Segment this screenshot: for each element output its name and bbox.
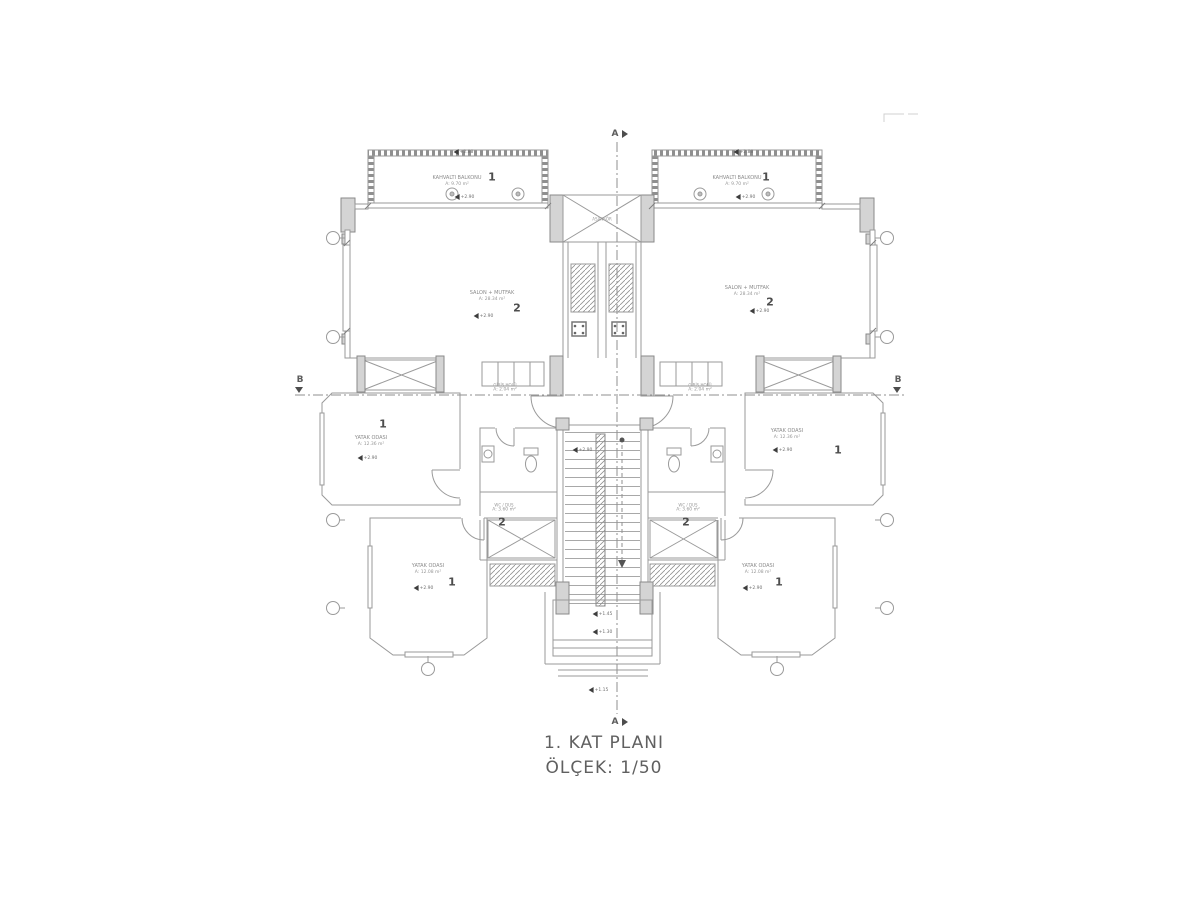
room-area: A: 3.60 m² xyxy=(676,508,700,514)
room-label-wc-right: WC / DUŞ A: 3.60 m² xyxy=(676,502,700,513)
room-name: YATAK ODASI xyxy=(412,563,444,570)
level-marker: +2.90 xyxy=(570,447,593,453)
room-tag-balcony-right: 1 xyxy=(762,171,770,184)
room-area: A: 12.36 m² xyxy=(771,434,803,440)
bedroom-mid-right-outline xyxy=(743,393,885,505)
level-marker: +2.90 xyxy=(411,585,434,591)
level-flag-icon xyxy=(570,447,578,453)
level-value: +1.30 xyxy=(599,630,613,635)
level-flag-icon xyxy=(411,585,419,591)
level-flag-icon xyxy=(590,629,598,635)
room-label-bedroom-mid-right: YATAK ODASI A: 12.36 m² xyxy=(771,428,803,440)
room-label-hall-left: GİRİŞ HOLÜ A: 2.04 m² xyxy=(493,382,517,393)
section-marker-b-left: B xyxy=(297,375,304,385)
level-marker: +1.15 xyxy=(586,687,609,693)
level-flag-icon xyxy=(740,585,748,591)
level-value: +1.15 xyxy=(595,688,609,693)
corner-mark xyxy=(884,114,918,122)
level-marker: +2.90 xyxy=(355,455,378,461)
section-marker-b-right: B xyxy=(895,375,902,385)
level-value: +2.90 xyxy=(756,309,770,314)
level-flag-icon xyxy=(471,313,479,319)
section-marker-a-bottom: A xyxy=(612,717,619,727)
middle-band xyxy=(345,356,875,396)
room-name: SALON + MUTFAK xyxy=(725,285,769,292)
room-area: A: 28.34 m² xyxy=(725,291,769,297)
room-area: A: 12.36 m² xyxy=(355,441,387,447)
section-marker-a-top: A xyxy=(612,129,619,139)
level-flag-icon xyxy=(770,447,778,453)
room-tag-bedroom-mid-right: 1 xyxy=(834,444,842,457)
plan-scale: ÖLÇEK: 1/50 xyxy=(546,758,663,778)
level-marker: +2.90 xyxy=(770,447,793,453)
floor-plan-sheet: A A B B KAHVALTI BALKONU A: 9.70 m² 1 +2… xyxy=(0,0,1200,900)
room-label-balcony-right: KAHVALTI BALKONU A: 9.70 m² xyxy=(712,175,761,187)
elevator-label: ASANSÖR xyxy=(592,216,612,221)
room-area: A: 12.08 m² xyxy=(412,569,444,575)
room-name: KAHVALTI BALKONU xyxy=(432,175,481,182)
level-marker: +2.90 xyxy=(733,194,756,200)
room-tag-wc-left: 2 xyxy=(498,516,506,529)
level-value: +2.90 xyxy=(742,195,756,200)
level-value: +2.90 xyxy=(779,448,793,453)
room-tag-salon-right: 2 xyxy=(766,296,774,309)
room-area: A: 28.34 m² xyxy=(470,296,514,302)
level-flag-icon xyxy=(590,611,598,617)
level-marker: +2.90 xyxy=(452,194,475,200)
level-value: +2.90 xyxy=(364,456,378,461)
level-value: +2.90 xyxy=(461,195,475,200)
level-marker: +2.90 xyxy=(471,313,494,319)
bathroom-left xyxy=(480,426,557,492)
level-value: +2.90 xyxy=(480,314,494,319)
room-area: A: 9.70 m² xyxy=(432,181,481,187)
level-marker: +1.30 xyxy=(590,629,613,635)
room-tag-salon-left: 2 xyxy=(513,302,521,315)
room-area: A: 2.04 m² xyxy=(688,388,712,394)
level-marker: +2.90 xyxy=(740,585,763,591)
room-tag-balcony-left: 1 xyxy=(488,171,496,184)
level-value: +2.88 xyxy=(740,150,754,155)
room-label-hall-right: GİRİŞ HOLÜ A: 2.04 m² xyxy=(688,382,712,393)
room-tag-bedroom-low-left: 1 xyxy=(448,576,456,589)
level-marker: +1.45 xyxy=(590,611,613,617)
room-label-wc-left: WC / DUŞ A: 3.60 m² xyxy=(492,502,516,513)
level-flag-icon xyxy=(733,194,741,200)
room-label-salon-right: SALON + MUTFAK A: 28.34 m² xyxy=(725,285,769,297)
level-value: +2.88 xyxy=(460,150,474,155)
room-tag-wc-right: 2 xyxy=(682,516,690,529)
level-marker: +2.88 xyxy=(731,149,754,155)
room-label-bedroom-low-right: YATAK ODASI A: 12.08 m² xyxy=(742,563,774,575)
bedroom-mid-left-outline xyxy=(320,393,462,505)
level-flag-icon xyxy=(355,455,363,461)
level-flag-icon xyxy=(451,149,459,155)
level-flag-icon xyxy=(731,149,739,155)
room-tag-bedroom-mid-left: 1 xyxy=(379,418,387,431)
plan-title: 1. KAT PLANI xyxy=(544,733,664,753)
level-marker: +2.88 xyxy=(451,149,474,155)
room-name: YATAK ODASI xyxy=(771,428,803,435)
level-flag-icon xyxy=(747,308,755,314)
room-label-salon-left: SALON + MUTFAK A: 28.34 m² xyxy=(470,290,514,302)
room-area: A: 9.70 m² xyxy=(712,181,761,187)
level-flag-icon xyxy=(452,194,460,200)
room-label-balcony-left: KAHVALTI BALKONU A: 9.70 m² xyxy=(432,175,481,187)
room-area: A: 3.60 m² xyxy=(492,508,516,514)
room-name: YATAK ODASI xyxy=(742,563,774,570)
room-tag-bedroom-low-right: 1 xyxy=(775,576,783,589)
room-name: YATAK ODASI xyxy=(355,435,387,442)
room-area: A: 2.04 m² xyxy=(493,388,517,394)
room-name: KAHVALTI BALKONU xyxy=(712,175,761,182)
room-area: A: 12.08 m² xyxy=(742,569,774,575)
level-value: +2.90 xyxy=(579,448,593,453)
level-value: +2.90 xyxy=(420,586,434,591)
level-value: +2.90 xyxy=(749,586,763,591)
room-label-bedroom-mid-left: YATAK ODASI A: 12.36 m² xyxy=(355,435,387,447)
level-flag-icon xyxy=(586,687,594,693)
level-marker: +2.90 xyxy=(747,308,770,314)
room-name: SALON + MUTFAK xyxy=(470,290,514,297)
bathroom-right xyxy=(648,426,725,492)
level-value: +1.45 xyxy=(599,612,613,617)
service-shafts xyxy=(568,242,636,358)
room-label-bedroom-low-left: YATAK ODASI A: 12.08 m² xyxy=(412,563,444,575)
